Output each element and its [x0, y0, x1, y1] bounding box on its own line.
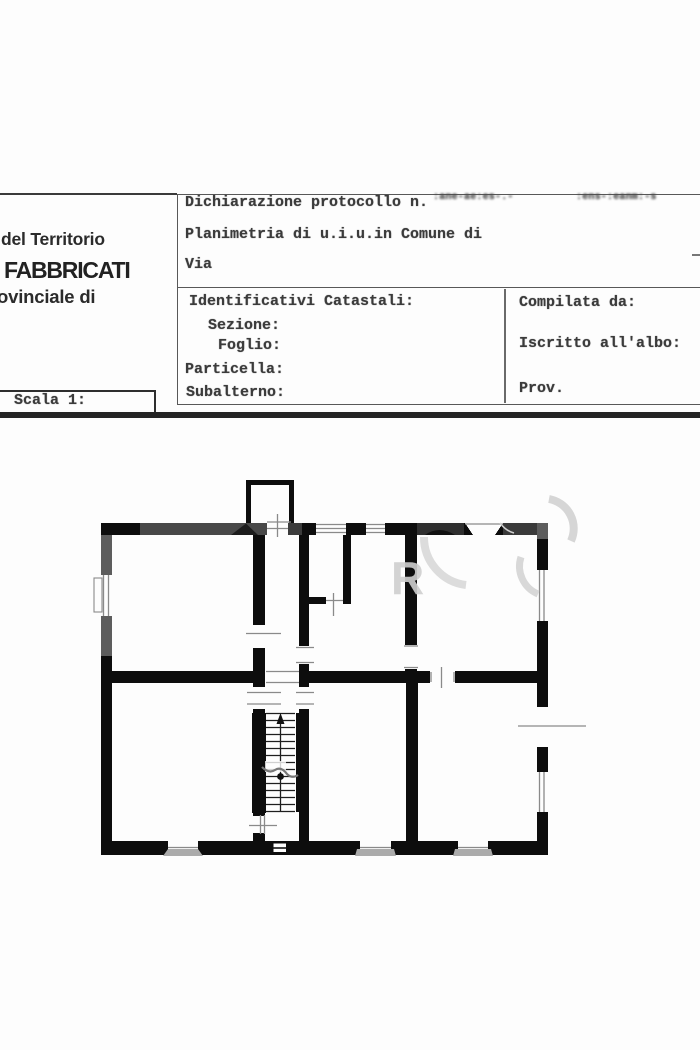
- svg-text:R: R: [391, 552, 424, 604]
